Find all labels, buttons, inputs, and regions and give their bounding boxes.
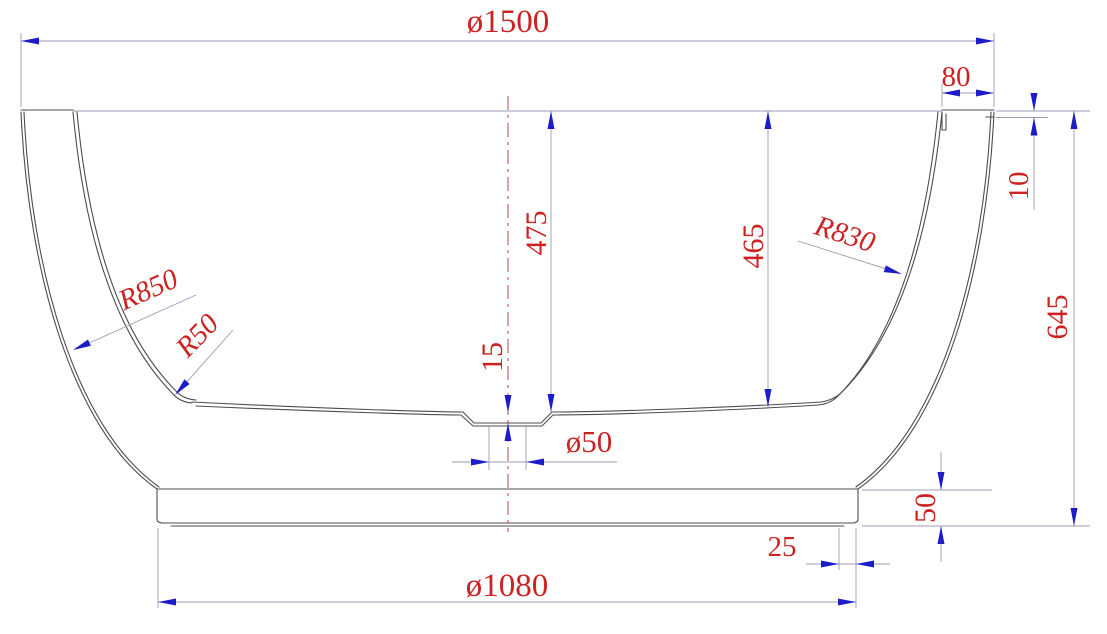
dimension-inner-wall-radius: R830 <box>798 209 903 277</box>
arrowhead-up <box>1071 111 1078 129</box>
dimension-base-edge-inset: 25 <box>768 531 891 568</box>
arrowhead-down <box>938 472 945 490</box>
arrowhead-left <box>526 459 544 466</box>
dimension-inner-depth-side: 465 <box>737 111 772 407</box>
floor-corner-radius-label: R50 <box>169 307 226 364</box>
base-diameter-label: ø1080 <box>466 568 549 604</box>
dimension-overall-diameter: ø1500 <box>21 4 994 45</box>
outer-wall-radius-label: R850 <box>113 263 183 318</box>
arrowhead-right <box>821 561 839 568</box>
arrowhead-up <box>765 111 772 129</box>
outer-wall-right <box>856 112 994 489</box>
inner-depth-center-label: 475 <box>520 211 553 256</box>
dimension-base-height: 50 <box>909 452 945 562</box>
arrowhead-right <box>471 459 489 466</box>
base-height-label: 50 <box>909 493 942 523</box>
dimension-floor-corner-radius: R50 <box>169 307 233 397</box>
arrowhead-down <box>1071 508 1078 526</box>
arrowhead-up <box>1031 118 1038 136</box>
arrowhead <box>72 339 91 353</box>
drawing-sheet: ø1500 80 10 645 475 465 R830 <box>0 0 1107 634</box>
arrowhead <box>172 379 189 397</box>
dimension-overall-height: 645 <box>1041 111 1078 526</box>
overall-diameter-label: ø1500 <box>467 4 550 40</box>
arrowhead-left <box>158 599 176 606</box>
overall-height-label: 645 <box>1041 295 1074 340</box>
arrowhead-down <box>1031 93 1038 111</box>
dimension-drain-diameter: ø50 <box>452 424 617 466</box>
dimension-rim-width: 80 <box>942 61 995 97</box>
drain-recess-depth-label: 15 <box>476 342 509 372</box>
inner-wall-left <box>73 112 196 403</box>
arrowhead-left <box>21 38 39 45</box>
drain-diameter-label: ø50 <box>566 424 613 459</box>
rim-width-label: 80 <box>942 61 971 93</box>
inner-depth-side-label: 465 <box>737 224 770 269</box>
arrowhead <box>884 265 903 277</box>
arrowhead-right <box>976 38 994 45</box>
floor-and-drain-recess <box>192 392 842 426</box>
dimension-inner-depth-center: 475 <box>520 111 555 412</box>
technical-drawing-canvas: ø1500 80 10 645 475 465 R830 <box>0 0 1107 634</box>
dimension-base-diameter: ø1080 <box>158 568 856 606</box>
base-edge-inset-label: 25 <box>768 531 797 563</box>
arrowhead-right <box>976 90 994 97</box>
rim-step-label: 10 <box>1003 172 1035 201</box>
arrowhead-up <box>548 111 555 129</box>
arrowhead-left <box>856 561 874 568</box>
arrowhead-up <box>938 526 945 544</box>
arrowhead-right <box>838 599 856 606</box>
arrowhead-down <box>505 395 512 413</box>
arrowhead-down <box>548 394 555 412</box>
inner-wall-radius-label: R830 <box>810 209 880 259</box>
